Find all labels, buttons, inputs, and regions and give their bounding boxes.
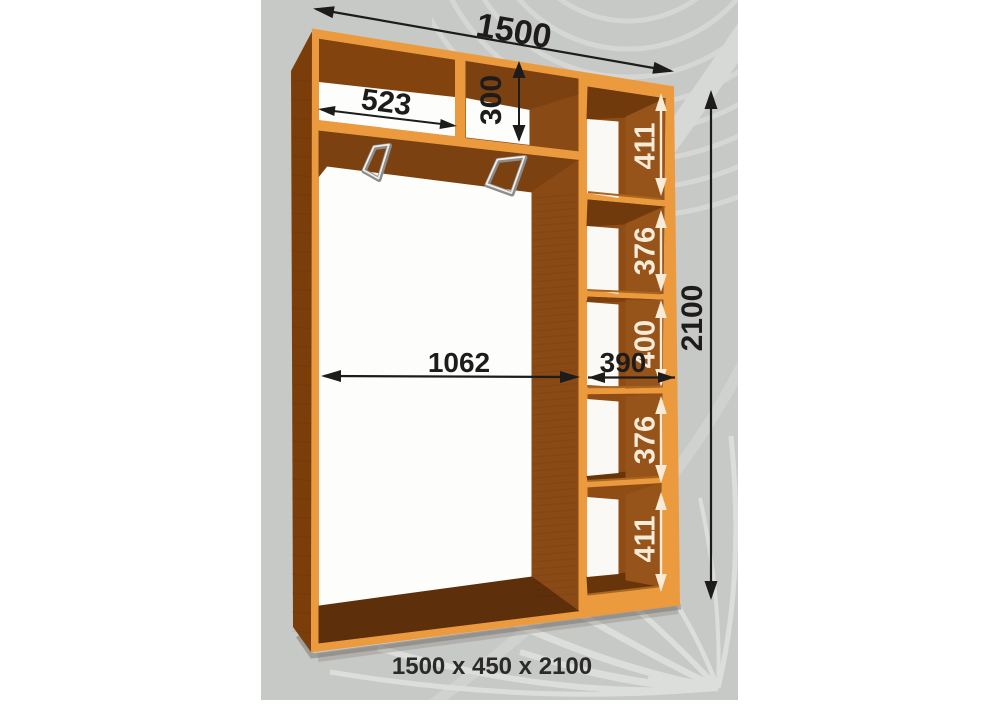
svg-text:523: 523 — [359, 83, 413, 122]
svg-text:300: 300 — [475, 75, 508, 125]
svg-text:2100: 2100 — [676, 285, 709, 352]
svg-text:1500 x 450 x 2100: 1500 x 450 x 2100 — [392, 653, 592, 680]
svg-text:1062: 1062 — [428, 347, 490, 378]
svg-text:376: 376 — [630, 227, 662, 275]
svg-text:411: 411 — [630, 123, 662, 170]
svg-text:390: 390 — [600, 347, 647, 378]
svg-text:376: 376 — [630, 416, 662, 464]
svg-text:411: 411 — [630, 516, 662, 563]
